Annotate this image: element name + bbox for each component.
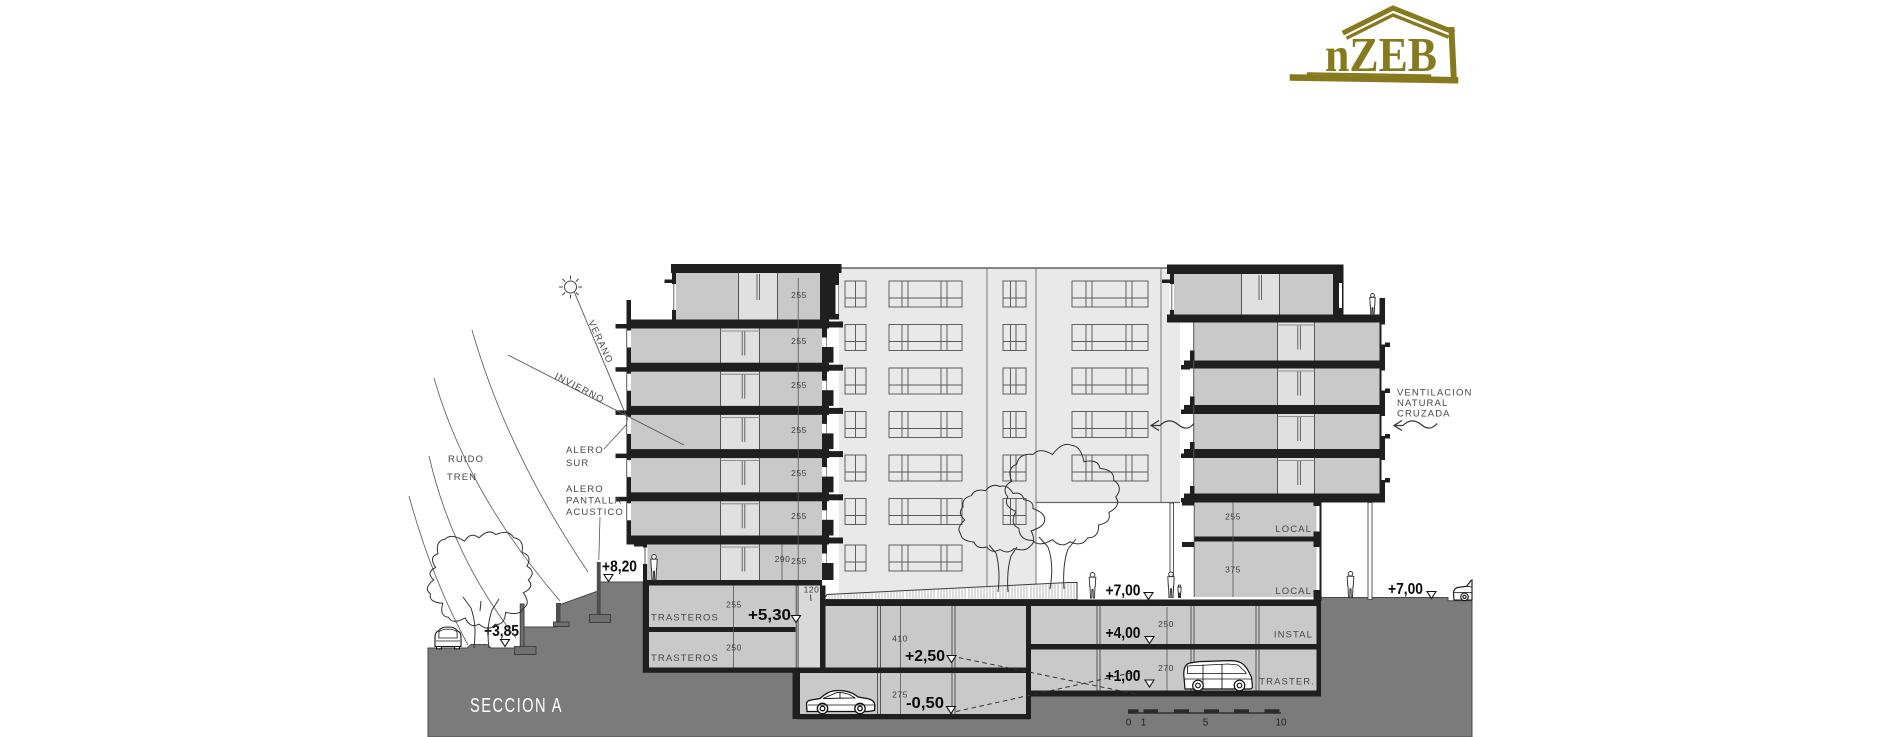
- svg-text:INSTAL: INSTAL: [1274, 630, 1313, 641]
- svg-text:255: 255: [791, 380, 807, 390]
- svg-text:PANTALLA: PANTALLA: [566, 496, 622, 507]
- svg-text:RUIDO: RUIDO: [448, 454, 484, 465]
- svg-text:375: 375: [1225, 565, 1241, 575]
- svg-text:+7,00: +7,00: [1106, 583, 1141, 600]
- svg-text:+5,30: +5,30: [748, 607, 791, 624]
- svg-text:250: 250: [1158, 619, 1174, 629]
- svg-text:ALERO: ALERO: [566, 445, 604, 456]
- svg-text:ACUSTICO: ACUSTICO: [566, 507, 624, 518]
- svg-text:255: 255: [791, 290, 807, 300]
- svg-text:LOCAL: LOCAL: [1275, 524, 1312, 535]
- svg-text:+3,85: +3,85: [484, 623, 519, 640]
- svg-text:255: 255: [791, 336, 807, 346]
- svg-text:SECCION A: SECCION A: [470, 695, 563, 717]
- svg-text:ALERO: ALERO: [566, 484, 604, 495]
- svg-text:TRASTEROS: TRASTEROS: [651, 613, 719, 624]
- svg-text:+7,00: +7,00: [1388, 581, 1423, 598]
- svg-text:+2,50: +2,50: [905, 648, 945, 665]
- svg-text:5: 5: [1203, 718, 1209, 729]
- svg-text:+4,00: +4,00: [1106, 625, 1141, 642]
- svg-text:1: 1: [1141, 718, 1147, 729]
- svg-text:255: 255: [791, 468, 807, 478]
- svg-text:+8,20: +8,20: [602, 559, 637, 576]
- svg-text:TREN: TREN: [447, 472, 477, 483]
- svg-text:+1,00: +1,00: [1106, 668, 1141, 685]
- svg-text:SUR: SUR: [566, 458, 589, 469]
- svg-text:410: 410: [892, 634, 908, 644]
- svg-text:10: 10: [1275, 718, 1287, 729]
- svg-text:255: 255: [1225, 512, 1241, 522]
- svg-text:290: 290: [775, 554, 791, 564]
- svg-text:LOCAL: LOCAL: [1275, 586, 1312, 597]
- svg-text:250: 250: [726, 643, 742, 653]
- svg-text:VENTILACION: VENTILACION: [1397, 388, 1472, 399]
- svg-text:255: 255: [726, 600, 742, 610]
- svg-text:-0,50: -0,50: [906, 695, 944, 712]
- svg-text:NATURAL: NATURAL: [1397, 398, 1448, 409]
- svg-text:255: 255: [791, 425, 807, 435]
- svg-text:nZEB: nZEB: [1325, 27, 1437, 82]
- svg-text:TRASTER.: TRASTER.: [1259, 677, 1315, 688]
- svg-text:CRUZADA: CRUZADA: [1397, 409, 1451, 420]
- svg-text:270: 270: [1158, 663, 1174, 673]
- svg-text:255: 255: [791, 556, 807, 566]
- svg-text:255: 255: [791, 511, 807, 521]
- svg-text:120: 120: [804, 585, 820, 595]
- svg-text:0: 0: [1126, 718, 1132, 729]
- svg-text:TRASTEROS: TRASTEROS: [651, 653, 719, 664]
